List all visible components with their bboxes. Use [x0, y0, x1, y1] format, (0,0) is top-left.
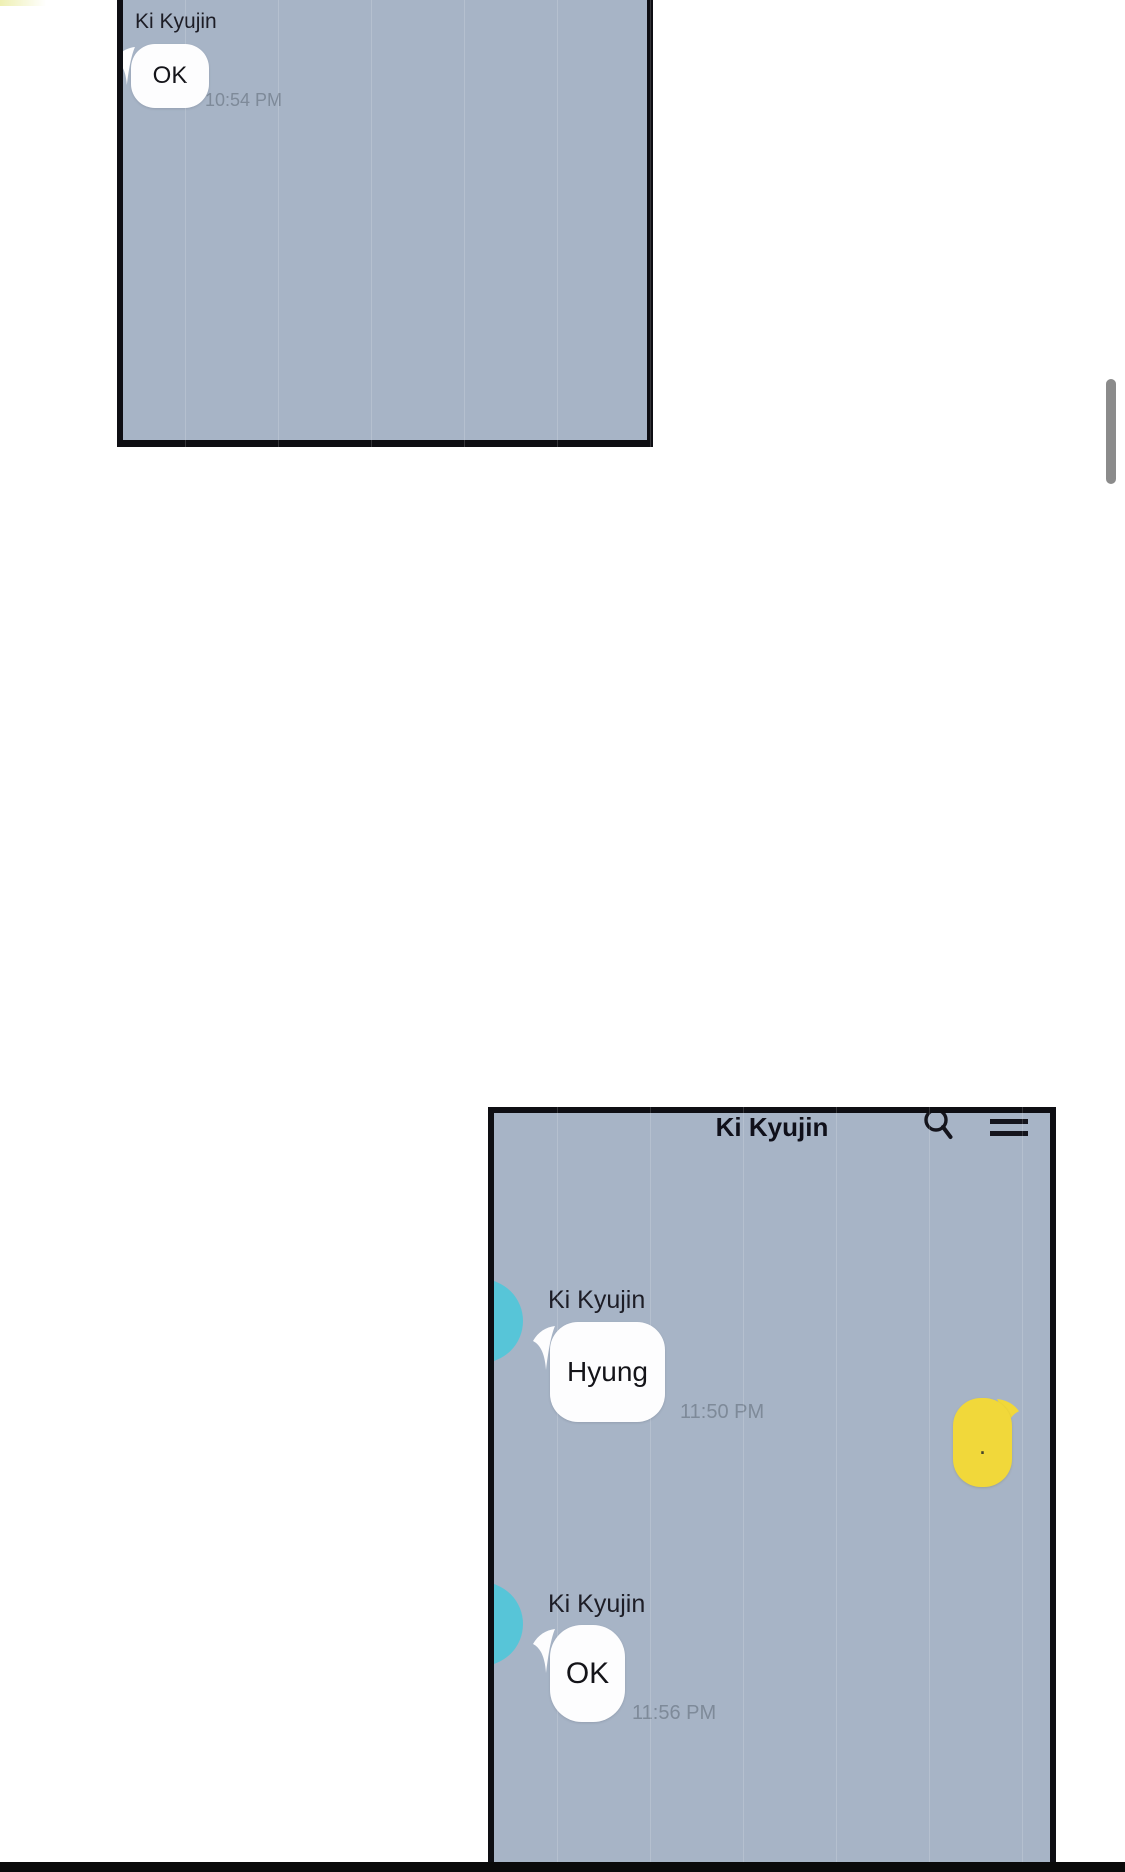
menu-icon-bar — [990, 1119, 1028, 1124]
menu-icon-bar — [990, 1131, 1028, 1136]
message-text: OK — [153, 62, 188, 90]
sender-name: Ki Kyujin — [135, 10, 217, 34]
sender-name: Ki Kyujin — [548, 1286, 645, 1315]
next-panel-edge — [0, 1862, 1125, 1872]
message-bubble-sent: . — [953, 1398, 1012, 1487]
message-text: OK — [566, 1657, 609, 1691]
search-icon[interactable] — [922, 1107, 954, 1142]
message-timestamp: 11:56 PM — [632, 1702, 716, 1725]
message-timestamp: 11:50 PM — [680, 1401, 764, 1424]
chat-panel-top: Ki Kyujin OK 10:54 PM — [117, 0, 653, 447]
avatar — [488, 1279, 523, 1363]
cropped-panel-sliver — [0, 0, 46, 6]
message-bubble: OK — [550, 1625, 625, 1722]
webtoon-page: Ki Kyujin OK 10:54 PM Ki Kyujin Ki Kyuji… — [0, 0, 1125, 1872]
scrollbar-thumb[interactable] — [1106, 379, 1116, 484]
message-bubble: OK — [131, 44, 209, 108]
message-text: Hyung — [567, 1356, 648, 1388]
message-timestamp: 10:54 PM — [205, 90, 282, 111]
message-text: . — [953, 1428, 1012, 1462]
message-bubble: Hyung — [550, 1322, 665, 1422]
chat-header-title: Ki Kyujin — [494, 1113, 1050, 1141]
menu-icon[interactable] — [990, 1119, 1028, 1137]
sender-name: Ki Kyujin — [548, 1590, 645, 1619]
chat-panel-bottom: Ki Kyujin Ki Kyujin Hyung 11:50 PM . Ki … — [488, 1107, 1056, 1862]
avatar — [488, 1582, 523, 1666]
